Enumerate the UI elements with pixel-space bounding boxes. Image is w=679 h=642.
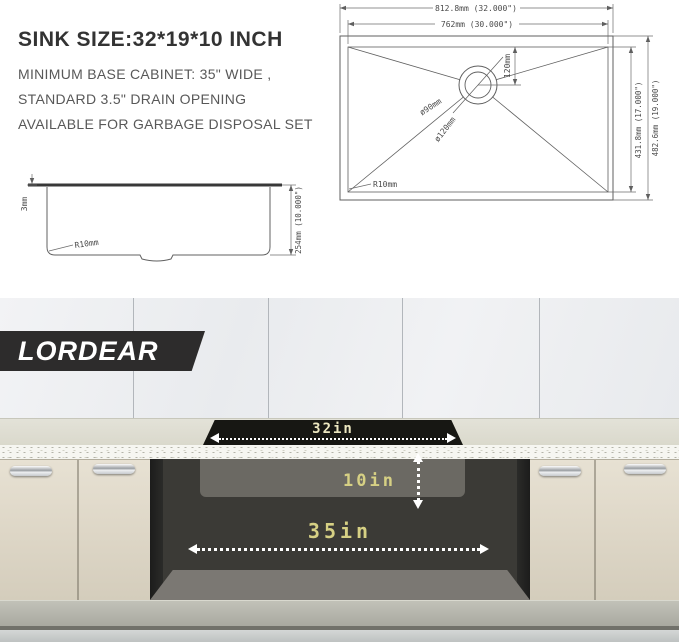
cabinet-door-gap	[77, 460, 79, 600]
base-cabinet-opening: 10in 35in	[150, 459, 530, 600]
dim-drain-offset: 120mm	[503, 54, 512, 78]
spec-line-drain: STANDARD 3.5" DRAIN OPENING	[18, 91, 328, 107]
dim-corner-radius-top: R10mm	[373, 180, 397, 189]
cabinet-handle	[10, 466, 52, 476]
dim-drain-inner-diameter: ø90mm	[418, 96, 443, 117]
opening-floor	[150, 570, 530, 600]
countertop-front-edge	[0, 445, 679, 459]
dim-outer-length: 482.6mm (19.000")	[651, 80, 660, 157]
sink-silhouette: 32in	[203, 420, 463, 445]
sink-profile	[47, 187, 270, 261]
cabinet-left	[0, 459, 150, 600]
kitchen-floor	[0, 630, 679, 642]
sink-outer-rect	[340, 36, 613, 200]
tile-grout-line	[268, 298, 269, 418]
toe-kick	[0, 600, 679, 626]
sink-width-arrow	[219, 438, 447, 440]
product-infographic: SINK SIZE:32*19*10 INCH MINIMUM BASE CAB…	[0, 0, 679, 642]
sink-depth-box	[200, 459, 465, 497]
cabinet-width-arrow	[197, 548, 480, 551]
cabinet-handle	[624, 464, 666, 474]
cabinet-handle	[93, 464, 135, 474]
top-view-drawing: 812.8mm (32.000") 762mm (30.000") 120mm …	[335, 0, 679, 215]
cabinet-handle	[539, 466, 581, 476]
cabinet-width-label: 35in	[150, 519, 530, 543]
spec-text-block: SINK SIZE:32*19*10 INCH MINIMUM BASE CAB…	[18, 28, 328, 141]
sink-width-label: 32in	[203, 421, 463, 437]
dim-depth: 254mm (10.000")	[294, 186, 303, 254]
cabinet-door-gap	[594, 460, 596, 600]
sink-depth-arrow	[417, 461, 420, 501]
spec-line-disposal: AVAILABLE FOR GARBAGE DISPOSAL SET	[18, 116, 328, 132]
dim-corner-radius-side: R10mm	[74, 238, 99, 250]
sink-depth-label: 10in	[343, 471, 396, 491]
sink-size-title: SINK SIZE:32*19*10 INCH	[18, 28, 328, 52]
spec-line-base-cabinet: MINIMUM BASE CABINET: 35" WIDE ,	[18, 66, 328, 82]
tile-grout-line	[539, 298, 540, 418]
dim-rim-thickness: 3mm	[20, 197, 29, 212]
brand-logo-text: LORDEAR	[0, 331, 205, 371]
dim-outer-width: 812.8mm (32.000")	[435, 4, 517, 13]
dim-inner-width: 762mm (30.000")	[441, 20, 513, 29]
dim-inner-length: 431.8mm (17.000")	[634, 82, 643, 159]
brand-banner: LORDEAR	[0, 331, 205, 371]
cabinet-right	[530, 459, 679, 600]
side-view-drawing: 3mm R10mm 254mm (10.000")	[18, 172, 310, 270]
tile-grout-line	[402, 298, 403, 418]
